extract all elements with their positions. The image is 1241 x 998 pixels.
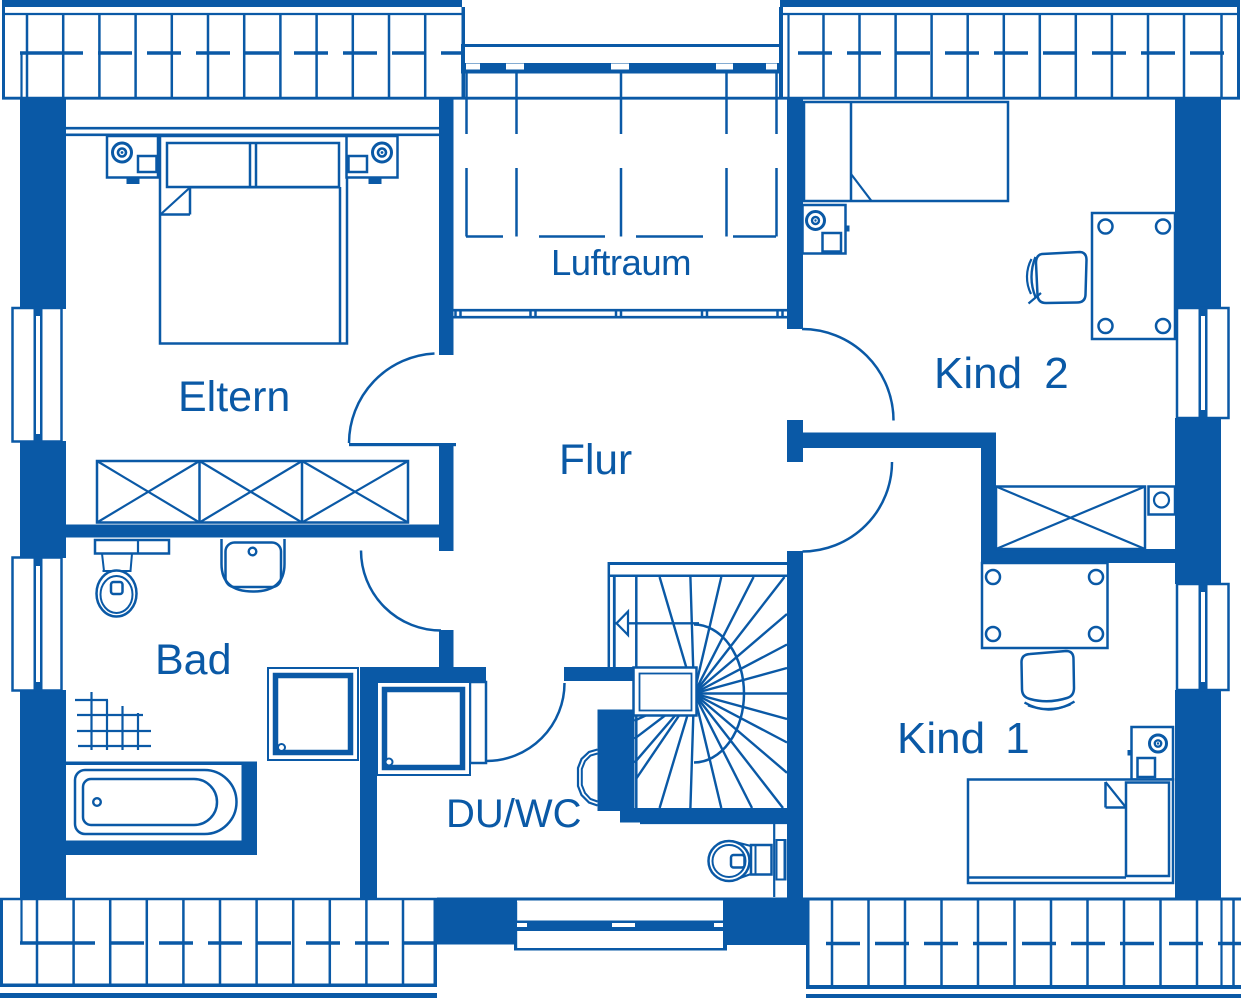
svg-text:Kind 2: Kind 2 xyxy=(934,349,1069,398)
svg-text:Bad: Bad xyxy=(155,636,232,684)
svg-text:Eltern: Eltern xyxy=(178,373,290,421)
svg-text:Kind 1: Kind 1 xyxy=(897,714,1030,763)
svg-text:Flur: Flur xyxy=(559,437,632,484)
svg-text:Luftraum: Luftraum xyxy=(551,242,691,283)
svg-text:DU/WC: DU/WC xyxy=(446,792,582,836)
